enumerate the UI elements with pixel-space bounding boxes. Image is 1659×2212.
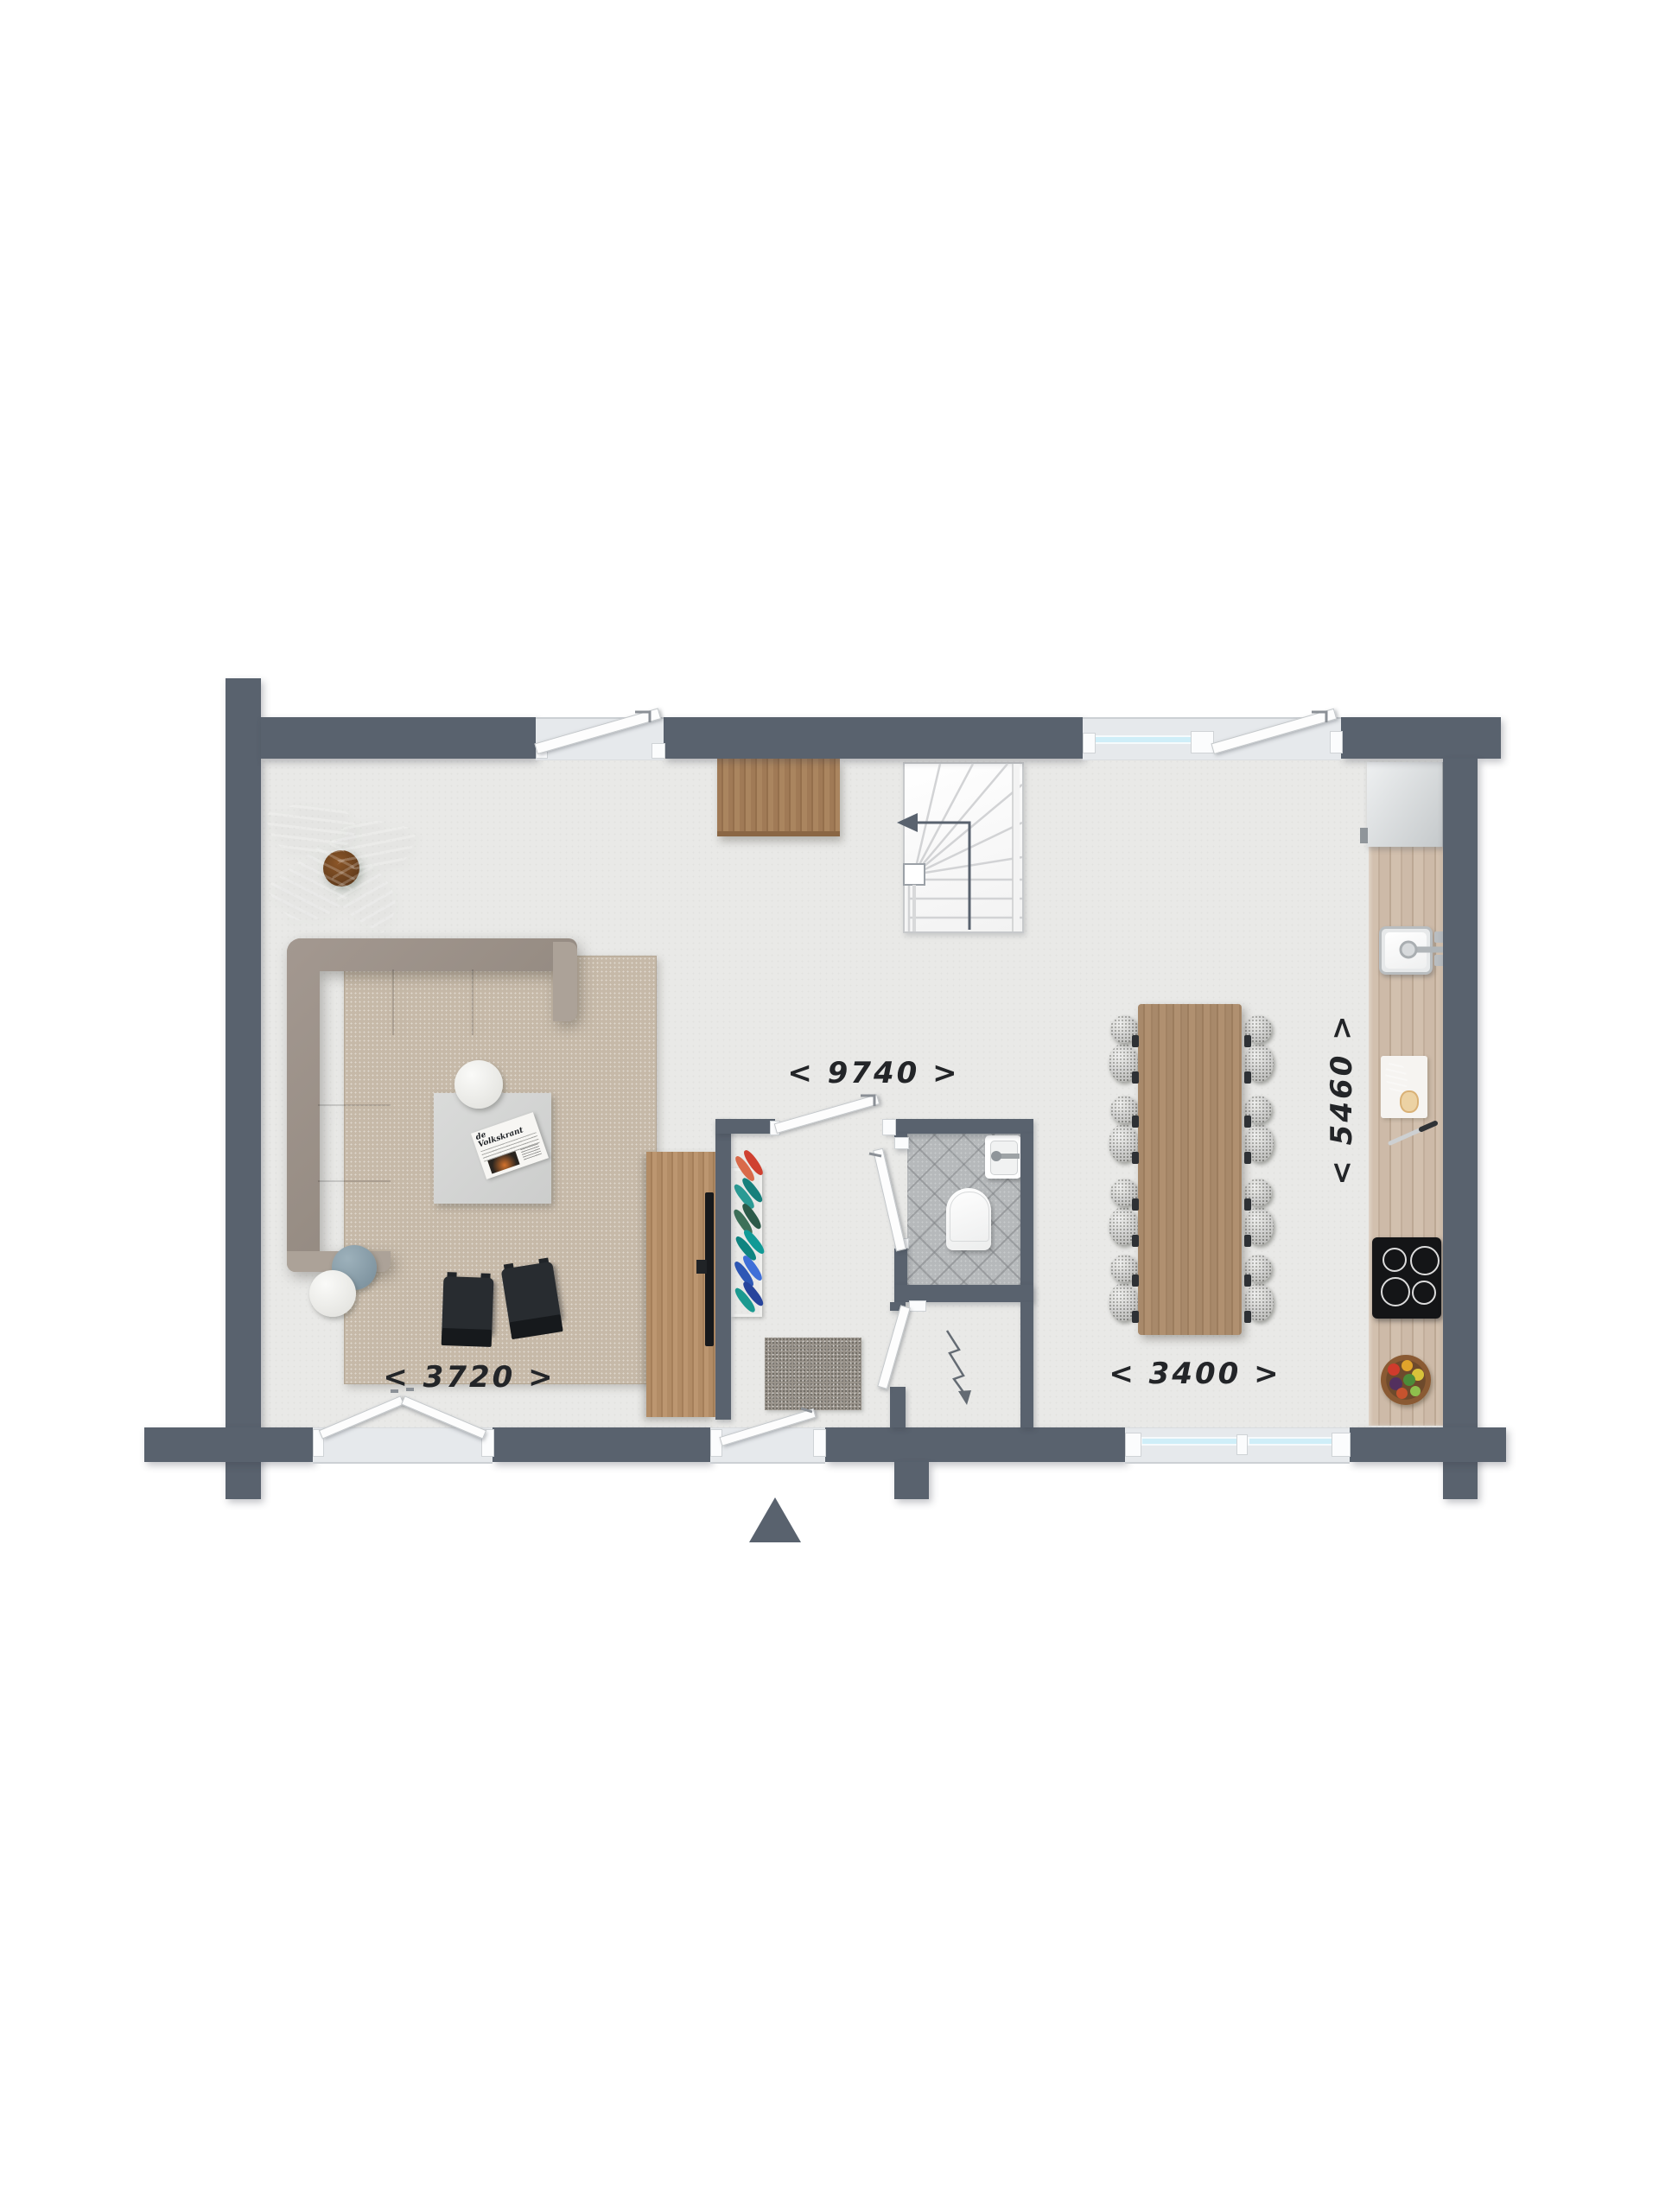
dimension-label-total-width: < 9740 > xyxy=(744,1056,1003,1090)
wall-stub xyxy=(894,1462,929,1499)
chair-arm xyxy=(1244,1116,1251,1128)
vegetable xyxy=(1388,1363,1400,1376)
burner xyxy=(1410,1246,1440,1275)
chair-arm xyxy=(1132,1071,1139,1084)
chair-arm xyxy=(1244,1311,1251,1323)
burner xyxy=(1412,1281,1436,1305)
window-post xyxy=(1332,1433,1351,1457)
closet-left-wall xyxy=(890,1387,906,1427)
door-post xyxy=(882,1119,896,1135)
vegetable-bowl xyxy=(1381,1355,1431,1405)
chair-arm xyxy=(1244,1071,1251,1084)
sofa-seats-horizontal xyxy=(318,969,553,1035)
plant xyxy=(270,797,416,939)
door-post xyxy=(813,1429,826,1457)
wall-top-segment xyxy=(1341,717,1501,759)
vegetable xyxy=(1403,1374,1415,1386)
lounge-chair xyxy=(442,1276,494,1351)
window-glass xyxy=(1141,1437,1239,1446)
fridge-handle xyxy=(1360,828,1368,843)
fridge xyxy=(1367,762,1445,847)
chair-arm xyxy=(1244,1198,1251,1211)
kitchen-sink-basin xyxy=(1385,932,1427,969)
chair-arm xyxy=(1132,1152,1139,1164)
toilet-bottom-wall xyxy=(894,1285,1033,1302)
toilet-seat-line xyxy=(950,1192,989,1242)
window-post xyxy=(1083,733,1096,753)
chair-arm xyxy=(1132,1116,1139,1128)
dimension-label-dining-width: < 3400 > xyxy=(1065,1357,1325,1391)
door-post xyxy=(652,743,665,759)
window-post xyxy=(1236,1434,1248,1455)
window-glass xyxy=(1091,735,1198,744)
chair-arm xyxy=(1132,1311,1139,1323)
burner xyxy=(1381,1277,1410,1306)
entrance-opening xyxy=(710,1427,825,1464)
tv-stand xyxy=(696,1260,707,1274)
stairs xyxy=(903,762,1024,933)
french-door-opening xyxy=(313,1427,493,1464)
chair-seat-edge xyxy=(442,1328,493,1347)
chair-arm xyxy=(1132,1274,1139,1287)
side-table-white xyxy=(309,1270,356,1317)
sofa-back-top xyxy=(287,938,577,971)
hall-left-wall xyxy=(715,1119,731,1420)
cooktop xyxy=(1372,1237,1441,1319)
closet-right-wall xyxy=(1020,1302,1033,1427)
toilet-top-wall xyxy=(884,1119,1033,1134)
chair-arm xyxy=(1244,1035,1251,1047)
wall-top-segment xyxy=(261,717,536,759)
door-post xyxy=(894,1137,909,1149)
dimension-label-depth: < 5460 > xyxy=(1325,969,1359,1229)
floor-plan: de Volkskrant xyxy=(0,0,1659,2212)
window-post xyxy=(1191,731,1214,753)
wall-bottom-segment xyxy=(825,1427,1125,1462)
wall-left xyxy=(226,678,261,1499)
vegetable xyxy=(1402,1360,1413,1371)
wall-top-segment xyxy=(664,717,1083,759)
chair-arm xyxy=(1244,1235,1251,1247)
sofa-back-left xyxy=(287,938,320,1272)
chair-arm xyxy=(1132,1235,1139,1247)
wall-bottom-segment xyxy=(1350,1427,1506,1462)
wall-bottom-segment xyxy=(144,1427,313,1462)
window-glass xyxy=(1248,1437,1334,1446)
bread-slice xyxy=(1400,1090,1419,1113)
chair-arm xyxy=(1132,1035,1139,1047)
sofa-chaise-end xyxy=(553,942,577,1021)
doormat xyxy=(765,1338,861,1410)
toilet-sink-basin xyxy=(990,1141,1018,1175)
round-coffee-table xyxy=(454,1060,503,1109)
burner xyxy=(1382,1248,1407,1272)
chair-arm xyxy=(1244,1152,1251,1164)
sideboard xyxy=(717,759,840,836)
door-post xyxy=(909,1300,926,1312)
toilet-right-wall xyxy=(1020,1134,1033,1302)
chair-arm xyxy=(1132,1198,1139,1211)
sofa-seats-vertical xyxy=(318,1033,391,1251)
entrance-arrow xyxy=(749,1497,801,1542)
hall-top-wall xyxy=(715,1119,775,1134)
dimension-label-living-width: < 3720 > xyxy=(340,1360,599,1395)
vegetable xyxy=(1396,1388,1408,1399)
window-post xyxy=(1125,1433,1141,1457)
wall-bottom-segment xyxy=(493,1427,710,1462)
chair-body xyxy=(442,1276,493,1335)
chair-arm xyxy=(1244,1274,1251,1287)
wall-right xyxy=(1443,759,1478,1499)
vegetable xyxy=(1410,1386,1421,1396)
dining-table xyxy=(1138,1004,1242,1335)
window-post xyxy=(1330,731,1343,753)
